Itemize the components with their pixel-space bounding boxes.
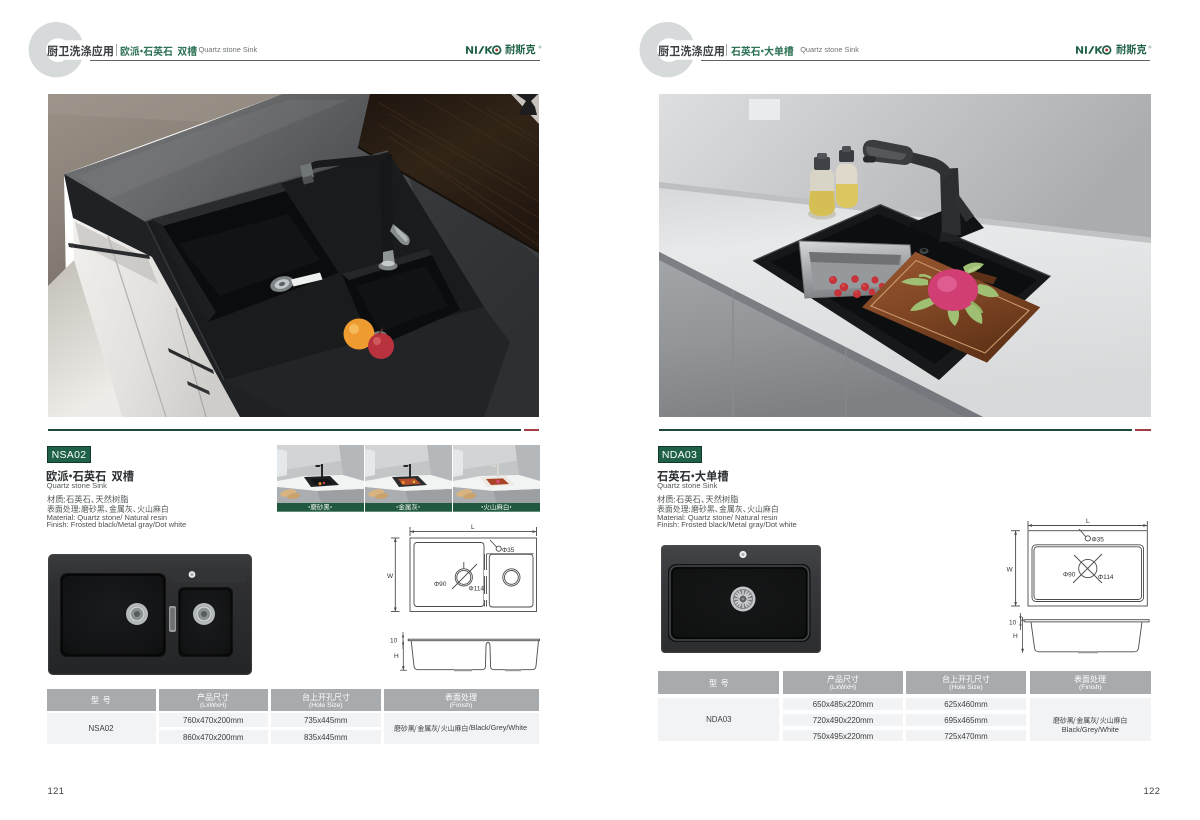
svg-text:L: L [1086,518,1090,525]
svg-text:Φ114: Φ114 [1098,574,1114,581]
svg-text:Φ35: Φ35 [502,547,515,554]
svg-text:10: 10 [390,638,398,645]
svg-text:Φ90: Φ90 [1063,572,1076,579]
svg-text:H: H [394,653,399,660]
svg-text:L: L [471,524,475,531]
svg-text:W: W [387,573,394,580]
svg-text:10: 10 [1009,620,1017,627]
svg-text:Φ35: Φ35 [1092,537,1105,544]
svg-text:H: H [1013,633,1018,640]
svg-text:®: ® [538,44,541,49]
svg-text:Φ114: Φ114 [469,586,485,593]
svg-text:W: W [1007,567,1014,574]
svg-text:Φ90: Φ90 [434,581,447,588]
svg-text:®: ® [1149,44,1152,49]
